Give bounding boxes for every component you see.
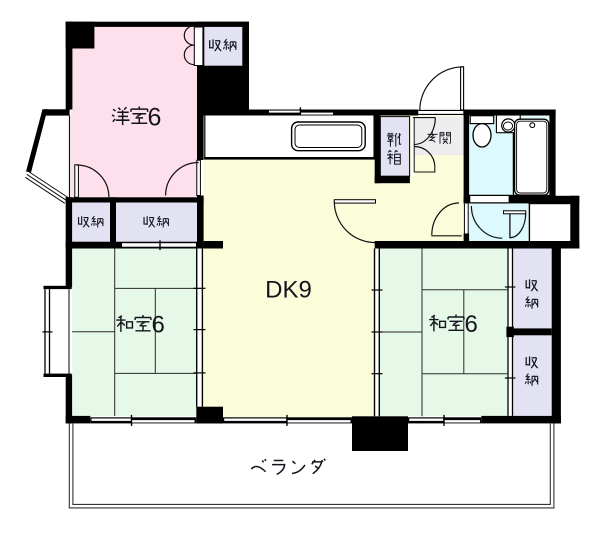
svg-text:DK9: DK9 bbox=[265, 276, 312, 303]
svg-text:6: 6 bbox=[152, 312, 165, 339]
svg-text:6: 6 bbox=[148, 103, 162, 131]
svg-text:6: 6 bbox=[465, 311, 478, 338]
